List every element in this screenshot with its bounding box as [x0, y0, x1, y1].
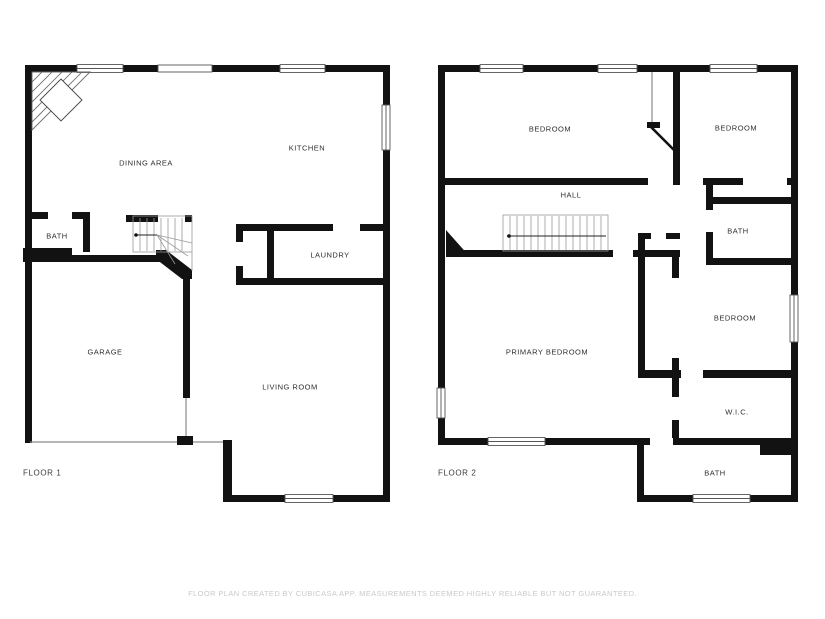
window-icon	[437, 388, 445, 418]
floor2-title: FLOOR 2	[438, 469, 476, 478]
room-label-bath-lower: BATH	[704, 469, 725, 478]
floor-plan-drawing	[0, 0, 825, 619]
room-label-primary-bedroom: PRIMARY BEDROOM	[506, 348, 588, 357]
room-label-wic: W.I.C.	[725, 408, 748, 417]
window-icon	[710, 65, 757, 73]
stairs-icon	[503, 215, 608, 251]
room-label-bedroom-top-left: BEDROOM	[529, 125, 571, 134]
floor1-walls	[23, 65, 390, 502]
room-label-dining-area: DINING AREA	[119, 159, 173, 168]
window-icon	[382, 105, 390, 150]
room-label-bath-upper: BATH	[727, 227, 748, 236]
room-label-hall: HALL	[561, 191, 582, 200]
window-icon	[488, 438, 545, 446]
floor1-thin-openings	[30, 398, 223, 442]
floor1-title: FLOOR 1	[23, 469, 61, 478]
door-swing-icon	[647, 72, 676, 152]
room-label-bath-f1: BATH	[46, 232, 67, 241]
room-label-kitchen: KITCHEN	[289, 144, 325, 153]
window-icon	[790, 295, 798, 342]
window-icon	[693, 495, 750, 503]
window-icon	[158, 65, 212, 72]
floor-plan-canvas: DINING AREA KITCHEN BATH LAUNDRY GARAGE …	[0, 0, 825, 619]
room-label-laundry: LAUNDRY	[310, 251, 349, 260]
window-icon	[77, 65, 123, 73]
window-icon	[598, 65, 637, 73]
window-icon	[280, 65, 325, 73]
room-label-bedroom-mid-right: BEDROOM	[714, 314, 756, 323]
disclaimer-text: FLOOR PLAN CREATED BY CUBICASA APP. MEAS…	[0, 589, 825, 598]
window-icon	[480, 65, 523, 73]
room-label-bedroom-top-right: BEDROOM	[715, 124, 757, 133]
room-label-garage: GARAGE	[87, 348, 122, 357]
window-icon	[285, 495, 333, 503]
room-label-living-room: LIVING ROOM	[262, 383, 318, 392]
